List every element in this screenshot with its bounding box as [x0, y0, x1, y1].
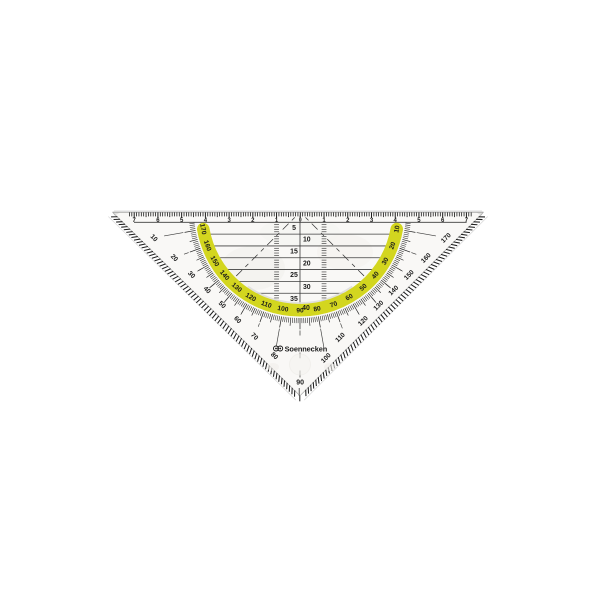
svg-text:30: 30 [303, 284, 311, 291]
svg-text:40: 40 [302, 305, 310, 312]
svg-text:5: 5 [292, 225, 296, 232]
svg-text:10: 10 [303, 237, 311, 244]
svg-text:15: 15 [290, 249, 298, 256]
svg-text:90: 90 [296, 380, 304, 387]
svg-text:25: 25 [290, 272, 298, 279]
svg-text:20: 20 [303, 260, 311, 267]
svg-text:Soennecken: Soennecken [285, 344, 328, 353]
